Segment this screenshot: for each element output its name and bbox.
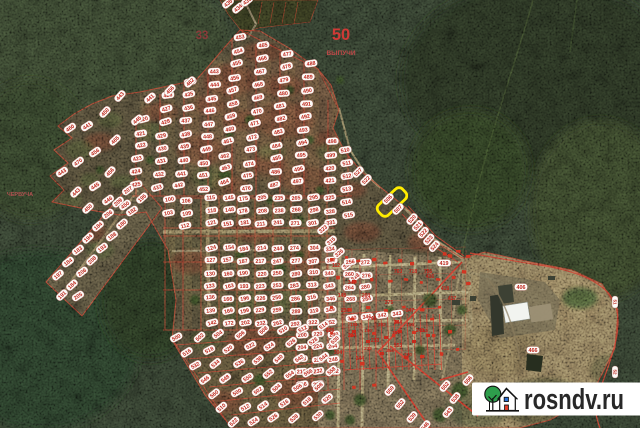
svg-text:346: 346 bbox=[326, 296, 335, 303]
svg-text:139: 139 bbox=[206, 308, 216, 315]
svg-text:486: 486 bbox=[271, 169, 280, 176]
svg-text:763: 763 bbox=[394, 269, 403, 275]
svg-text:268: 268 bbox=[346, 297, 355, 303]
svg-text:230: 230 bbox=[404, 352, 412, 357]
svg-text:477: 477 bbox=[282, 51, 292, 58]
svg-text:238: 238 bbox=[275, 208, 284, 214]
svg-text:ЧЕРВУЧА: ЧЕРВУЧА bbox=[7, 192, 33, 198]
svg-text:416: 416 bbox=[426, 274, 435, 280]
svg-text:271: 271 bbox=[291, 221, 300, 227]
svg-text:236: 236 bbox=[341, 308, 350, 314]
svg-text:172: 172 bbox=[225, 320, 235, 327]
svg-text:226: 226 bbox=[256, 296, 265, 302]
svg-text:344: 344 bbox=[394, 320, 403, 326]
svg-text:432: 432 bbox=[155, 171, 165, 178]
svg-text:343: 343 bbox=[392, 311, 402, 318]
svg-text:286: 286 bbox=[291, 296, 300, 303]
svg-text:52: 52 bbox=[612, 369, 617, 375]
svg-text:229: 229 bbox=[255, 307, 265, 314]
svg-text:224: 224 bbox=[348, 333, 357, 339]
svg-text:260: 260 bbox=[345, 272, 354, 278]
svg-text:136: 136 bbox=[206, 295, 215, 302]
svg-text:154: 154 bbox=[225, 245, 234, 251]
svg-text:493: 493 bbox=[298, 127, 308, 134]
svg-text:272: 272 bbox=[361, 260, 370, 266]
svg-text:450: 450 bbox=[199, 161, 208, 168]
svg-text:241: 241 bbox=[273, 220, 282, 227]
svg-text:148: 148 bbox=[225, 207, 235, 214]
svg-text:347: 347 bbox=[348, 280, 357, 286]
svg-text:340: 340 bbox=[324, 271, 333, 278]
svg-text:313: 313 bbox=[308, 282, 317, 288]
svg-text:204: 204 bbox=[297, 345, 306, 352]
svg-text:307: 307 bbox=[308, 258, 318, 265]
svg-text:277: 277 bbox=[291, 258, 300, 265]
svg-text:467: 467 bbox=[256, 69, 266, 76]
svg-text:268: 268 bbox=[292, 207, 301, 213]
svg-text:150: 150 bbox=[364, 328, 372, 333]
svg-text:33: 33 bbox=[196, 30, 209, 42]
svg-text:153: 153 bbox=[392, 330, 400, 335]
svg-text:145: 145 bbox=[224, 195, 234, 202]
svg-text:447: 447 bbox=[204, 122, 213, 128]
svg-text:342: 342 bbox=[377, 312, 387, 319]
svg-text:497: 497 bbox=[293, 179, 303, 186]
svg-text:225: 225 bbox=[326, 328, 335, 334]
svg-text:292: 292 bbox=[378, 322, 386, 327]
svg-text:155: 155 bbox=[406, 322, 414, 327]
svg-text:51: 51 bbox=[612, 299, 617, 305]
svg-text:495: 495 bbox=[297, 153, 306, 160]
svg-text:244: 244 bbox=[273, 246, 282, 253]
svg-text:334: 334 bbox=[325, 246, 335, 253]
svg-text:441: 441 bbox=[177, 171, 187, 178]
svg-text:420: 420 bbox=[325, 165, 335, 172]
svg-text:421: 421 bbox=[325, 178, 334, 185]
svg-text:347: 347 bbox=[406, 308, 415, 314]
svg-text:466: 466 bbox=[529, 348, 538, 354]
svg-text:rosndv.ru: rosndv.ru bbox=[524, 384, 624, 416]
svg-text:322: 322 bbox=[308, 320, 317, 326]
svg-text:304: 304 bbox=[334, 350, 343, 356]
svg-text:474: 474 bbox=[245, 161, 255, 168]
svg-text:444: 444 bbox=[210, 82, 220, 89]
svg-text:328: 328 bbox=[326, 209, 335, 216]
svg-text:181: 181 bbox=[240, 220, 250, 227]
svg-text:274: 274 bbox=[290, 245, 299, 251]
svg-text:187: 187 bbox=[238, 258, 248, 265]
svg-text:289: 289 bbox=[291, 309, 300, 315]
svg-text:106: 106 bbox=[182, 198, 191, 204]
svg-text:208: 208 bbox=[258, 208, 267, 215]
svg-text:245: 245 bbox=[416, 328, 425, 334]
svg-text:499: 499 bbox=[326, 153, 336, 160]
svg-text:406: 406 bbox=[517, 285, 526, 291]
svg-text:489: 489 bbox=[304, 75, 313, 81]
svg-text:127: 127 bbox=[206, 258, 215, 264]
svg-text:50: 50 bbox=[332, 26, 350, 44]
svg-text:280: 280 bbox=[361, 284, 371, 291]
svg-text:151: 151 bbox=[350, 322, 358, 327]
svg-text:276: 276 bbox=[362, 273, 371, 279]
svg-text:220: 220 bbox=[257, 271, 266, 278]
svg-text:250: 250 bbox=[273, 270, 282, 277]
svg-text:437: 437 bbox=[181, 118, 190, 125]
svg-text:491: 491 bbox=[302, 102, 311, 108]
svg-text:310: 310 bbox=[309, 270, 318, 276]
svg-text:166: 166 bbox=[223, 297, 232, 303]
svg-text:248: 248 bbox=[328, 357, 338, 364]
svg-text:160: 160 bbox=[223, 271, 233, 278]
svg-text:223: 223 bbox=[256, 284, 266, 291]
svg-text:112: 112 bbox=[332, 263, 340, 269]
svg-text:130: 130 bbox=[206, 271, 215, 278]
svg-text:553: 553 bbox=[394, 343, 403, 349]
svg-text:476: 476 bbox=[242, 186, 252, 193]
svg-text:193: 193 bbox=[239, 284, 248, 290]
svg-text:418: 418 bbox=[441, 286, 450, 292]
svg-text:115: 115 bbox=[206, 195, 215, 201]
svg-text:217: 217 bbox=[255, 259, 264, 265]
svg-text:235: 235 bbox=[274, 195, 283, 202]
svg-text:498: 498 bbox=[328, 139, 337, 145]
svg-text:718: 718 bbox=[409, 269, 418, 275]
svg-text:232: 232 bbox=[364, 346, 372, 351]
svg-text:211: 211 bbox=[256, 221, 265, 228]
svg-text:260: 260 bbox=[362, 293, 371, 299]
svg-text:445: 445 bbox=[207, 96, 217, 103]
svg-text:264: 264 bbox=[345, 285, 354, 291]
svg-text:344: 344 bbox=[356, 356, 365, 362]
svg-text:265: 265 bbox=[291, 195, 300, 202]
svg-text:275: 275 bbox=[385, 300, 394, 306]
svg-text:253: 253 bbox=[273, 283, 282, 289]
svg-text:233: 233 bbox=[371, 338, 380, 344]
svg-text:419: 419 bbox=[440, 261, 449, 267]
svg-text:247: 247 bbox=[273, 258, 283, 265]
svg-text:452: 452 bbox=[199, 187, 208, 193]
svg-text:448: 448 bbox=[203, 134, 212, 140]
svg-text:175: 175 bbox=[239, 196, 249, 203]
svg-text:480: 480 bbox=[279, 91, 288, 98]
svg-text:243: 243 bbox=[368, 316, 377, 322]
svg-text:280: 280 bbox=[291, 271, 301, 278]
svg-text:148: 148 bbox=[338, 293, 347, 299]
svg-text:190: 190 bbox=[239, 270, 249, 277]
svg-text:ВЫПУЧИ: ВЫПУЧИ bbox=[326, 50, 355, 57]
svg-text:417: 417 bbox=[448, 296, 457, 302]
svg-text:256: 256 bbox=[345, 259, 355, 266]
svg-text:446: 446 bbox=[205, 108, 215, 115]
svg-text:304: 304 bbox=[309, 245, 318, 251]
svg-text:443: 443 bbox=[210, 69, 219, 75]
svg-text:118: 118 bbox=[207, 208, 216, 215]
